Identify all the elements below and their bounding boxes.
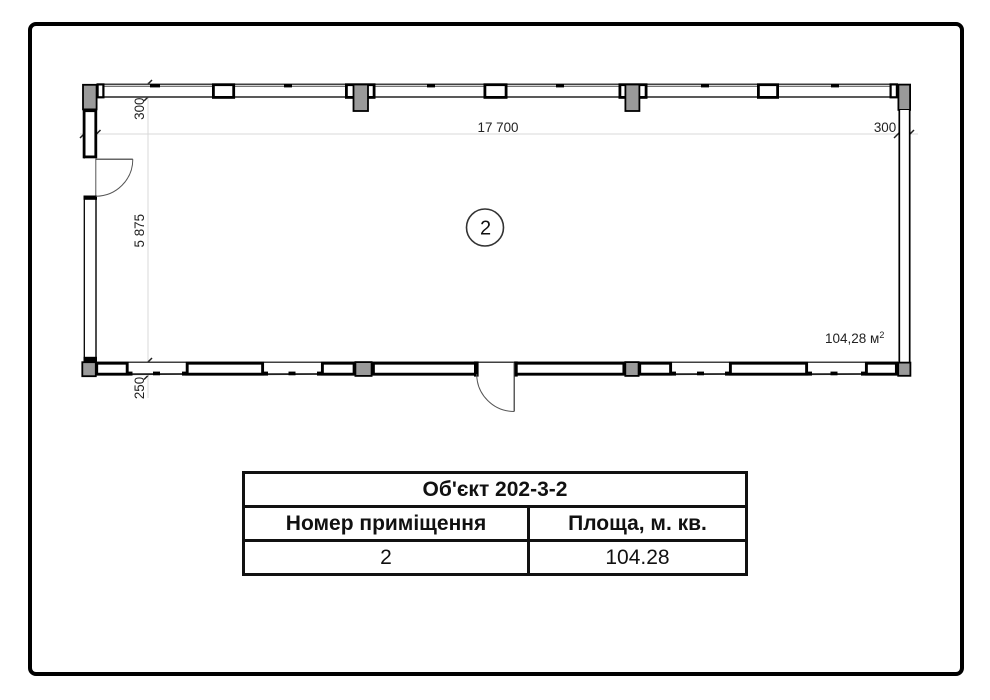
svg-text:250: 250 — [132, 377, 147, 399]
svg-text:2: 2 — [480, 218, 491, 240]
svg-text:104,28 м2: 104,28 м2 — [825, 330, 884, 346]
svg-text:300: 300 — [874, 120, 896, 135]
svg-text:300: 300 — [132, 98, 147, 120]
svg-text:5 875: 5 875 — [132, 214, 147, 248]
svg-text:17 700: 17 700 — [478, 120, 519, 135]
